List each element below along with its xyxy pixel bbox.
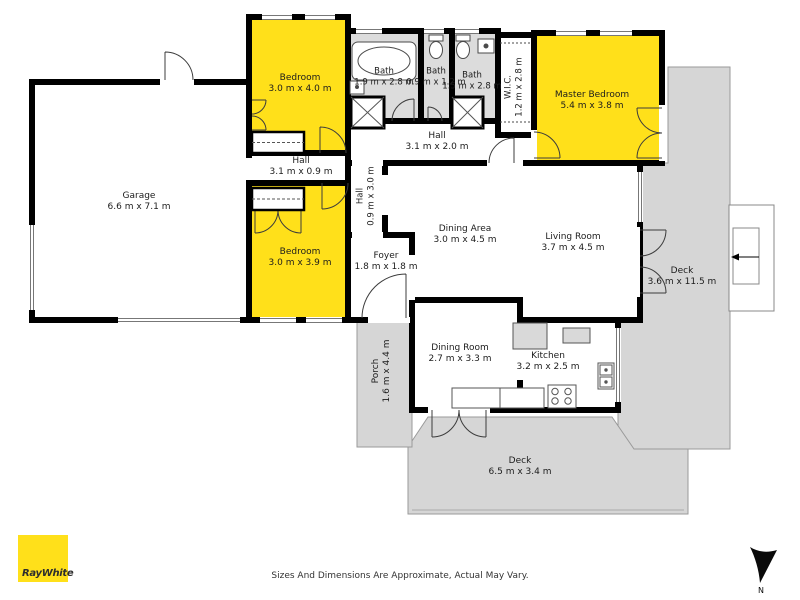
room-name: Living Room xyxy=(542,232,605,243)
floorplan-drawing xyxy=(0,0,800,600)
room-dims: 1.8 m x 1.8 m xyxy=(355,262,418,273)
room-label-deck-right: Deck3.6 m x 11.5 m xyxy=(648,266,717,289)
room-label-dining-area: Dining Area3.0 m x 4.5 m xyxy=(434,224,497,247)
room-name: Hall xyxy=(270,156,333,167)
room-dims: 1.5 m x 2.8 m xyxy=(442,81,501,92)
room-name: Bedroom xyxy=(269,73,332,84)
room-name: Hall xyxy=(355,166,366,225)
room-label-kitchen: Kitchen3.2 m x 2.5 m xyxy=(517,351,580,374)
room-dims: 3.1 m x 0.9 m xyxy=(270,167,333,178)
room-dims: 3.0 m x 4.5 m xyxy=(434,235,497,246)
toilet-bowl-2 xyxy=(457,42,470,59)
room-label-dining-room: Dining Room2.7 m x 3.3 m xyxy=(429,343,492,366)
toilet-tank-2 xyxy=(456,35,470,41)
room-dims: 3.1 m x 2.0 m xyxy=(406,142,469,153)
room-name: W.I.C. xyxy=(503,57,514,116)
room-label-master-bedroom: Master Bedroom5.4 m x 3.8 m xyxy=(555,90,629,113)
room-dims: 3.2 m x 2.5 m xyxy=(517,362,580,373)
room-dims: 1.9 m x 2.8 m xyxy=(354,77,413,88)
room-label-bedroom2: Bedroom3.0 m x 3.9 m xyxy=(269,247,332,270)
room-name: Garage xyxy=(108,191,171,202)
room-name: Bath xyxy=(354,66,413,77)
room-label-deck-bottom: Deck6.5 m x 3.4 m xyxy=(489,456,552,479)
room-dims: 2.7 m x 3.3 m xyxy=(429,354,492,365)
toilet-bowl-1 xyxy=(430,42,443,59)
room-label-hall-long: Hall3.1 m x 2.0 m xyxy=(406,131,469,154)
room-label-hall-top: Hall3.1 m x 0.9 m xyxy=(270,156,333,179)
toilet-tank-1 xyxy=(429,35,443,41)
room-dims: 3.6 m x 11.5 m xyxy=(648,277,717,288)
room-name: Bedroom xyxy=(269,247,332,258)
room-dims: 5.4 m x 3.8 m xyxy=(555,101,629,112)
room-label-living-room: Living Room3.7 m x 4.5 m xyxy=(542,232,605,255)
floorplan-page: Garage6.6 m x 7.1 m Bedroom3.0 m x 4.0 m… xyxy=(0,0,800,600)
room-label-bath1: Bath1.9 m x 2.8 m xyxy=(354,66,413,87)
room-dims: 1.6 m x 4.4 m xyxy=(382,340,393,403)
room-dims: 6.5 m x 3.4 m xyxy=(489,467,552,478)
room-name: Deck xyxy=(489,456,552,467)
room-label-garage: Garage6.6 m x 7.1 m xyxy=(108,191,171,214)
north-arrow-icon: N xyxy=(745,538,785,596)
room-dims: 0.9 m x 3.0 m xyxy=(366,166,377,225)
room-label-porch: Porch1.6 m x 4.4 m xyxy=(371,340,394,403)
room-dims: 3.7 m x 4.5 m xyxy=(542,243,605,254)
room-name: Master Bedroom xyxy=(555,90,629,101)
room-name: Dining Area xyxy=(434,224,497,235)
room-label-bedroom1: Bedroom3.0 m x 4.0 m xyxy=(269,73,332,96)
deck-stairs xyxy=(729,205,774,311)
room-label-foyer: Foyer1.8 m x 1.8 m xyxy=(355,251,418,274)
stove xyxy=(548,385,576,408)
room-name: Hall xyxy=(406,131,469,142)
room-label-hall-vert: Hall0.9 m x 3.0 m xyxy=(355,166,376,225)
foyer-shape xyxy=(348,235,412,320)
room-name: Kitchen xyxy=(517,351,580,362)
room-label-wic: W.I.C.1.2 m x 2.8 m xyxy=(503,57,524,116)
room-label-bath3: Bath1.5 m x 2.8 m xyxy=(442,70,501,91)
room-name: Dining Room xyxy=(429,343,492,354)
disclaimer-text: Sizes And Dimensions Are Approximate, Ac… xyxy=(0,571,800,581)
room-name: Foyer xyxy=(355,251,418,262)
room-name: Bath xyxy=(442,70,501,81)
room-dims: 3.0 m x 3.9 m xyxy=(269,258,332,269)
room-dims: 3.0 m x 4.0 m xyxy=(269,84,332,95)
north-label: N xyxy=(758,586,764,595)
room-name: Porch xyxy=(371,340,382,403)
room-name: Deck xyxy=(648,266,717,277)
room-dims: 6.6 m x 7.1 m xyxy=(108,202,171,213)
room-dims: 1.2 m x 2.8 m xyxy=(514,57,525,116)
